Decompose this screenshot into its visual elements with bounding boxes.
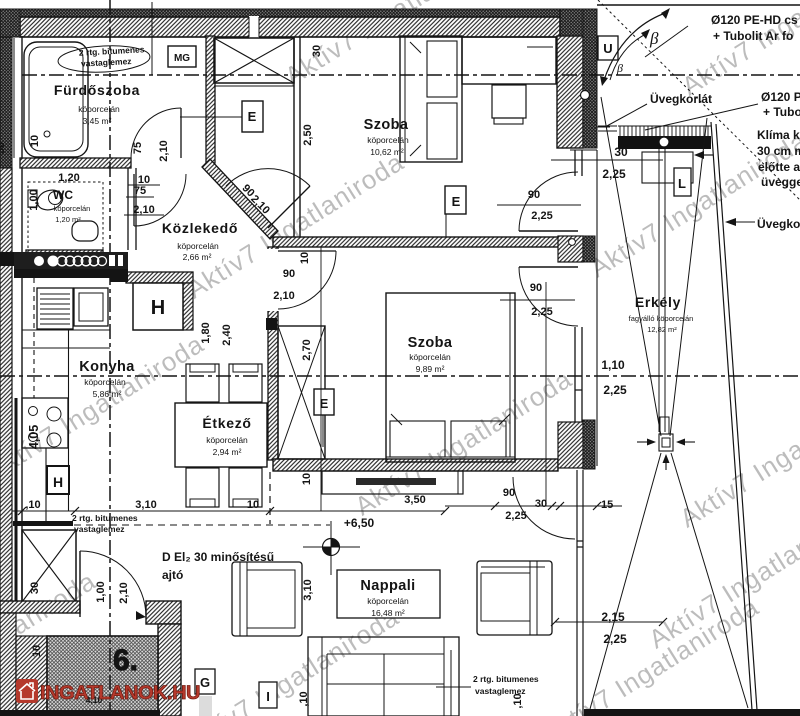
svg-text:10: 10 — [31, 645, 43, 657]
svg-text:fagyálló köporcelán: fagyálló köporcelán — [629, 314, 694, 323]
svg-text:köporcelán: köporcelán — [177, 241, 219, 251]
svg-text:1,00: 1,00 — [28, 189, 40, 210]
svg-text:6.: 6. — [113, 644, 138, 677]
svg-text:köporcelán: köporcelán — [206, 435, 248, 445]
svg-text:G: G — [200, 675, 210, 690]
svg-text:12,82 m²: 12,82 m² — [647, 325, 677, 334]
svg-text:90: 90 — [530, 282, 542, 294]
svg-text:Nappali: Nappali — [360, 578, 415, 594]
svg-text:3,10: 3,10 — [302, 579, 314, 600]
svg-text:1,20 m²: 1,20 m² — [55, 215, 81, 224]
svg-text:2,25: 2,25 — [603, 632, 627, 646]
svg-text:2,70: 2,70 — [301, 339, 313, 360]
svg-text:30: 30 — [535, 498, 547, 510]
svg-text:15: 15 — [601, 499, 613, 511]
svg-text:2,25: 2,25 — [531, 210, 552, 222]
svg-text:Szoba: Szoba — [364, 117, 409, 133]
svg-text:E: E — [248, 109, 257, 124]
svg-text:3,10: 3,10 — [135, 499, 156, 511]
svg-text:10: 10 — [29, 135, 41, 147]
svg-text:köporcelán: köporcelán — [84, 377, 126, 387]
svg-text:köporcelán: köporcelán — [367, 596, 409, 606]
svg-text:2,66 m²: 2,66 m² — [183, 252, 212, 262]
svg-text:Klíma k: Klíma k — [757, 128, 800, 142]
svg-text:2,25: 2,25 — [531, 306, 552, 318]
svg-text:+ Tubolit Ar fo: + Tubolit Ar fo — [713, 29, 793, 43]
svg-text:10: 10 — [247, 499, 259, 511]
svg-text:2,25: 2,25 — [603, 383, 627, 397]
svg-text:2,10: 2,10 — [273, 290, 294, 302]
svg-text:2,94 m²: 2,94 m² — [213, 447, 242, 457]
svg-text:30: 30 — [311, 45, 323, 57]
svg-text:U: U — [603, 41, 612, 56]
svg-text:3,45 m²: 3,45 m² — [83, 116, 112, 126]
svg-text:2,25: 2,25 — [602, 167, 626, 181]
svg-text:β: β — [649, 29, 659, 48]
svg-text:75: 75 — [132, 142, 144, 154]
svg-text:,10: ,10 — [25, 499, 40, 511]
svg-text:Konyha: Konyha — [79, 359, 135, 375]
svg-text:H: H — [151, 297, 165, 319]
svg-text:2,50: 2,50 — [302, 124, 314, 145]
svg-text:köporcelán: köporcelán — [409, 352, 451, 362]
svg-text:30: 30 — [29, 582, 41, 594]
svg-text:MG: MG — [174, 53, 190, 64]
svg-text:1,00: 1,00 — [95, 581, 107, 602]
svg-text:3,50: 3,50 — [404, 494, 425, 506]
svg-text:Közlekedő: Közlekedő — [162, 220, 238, 236]
svg-text:2,10: 2,10 — [158, 140, 170, 161]
svg-text:2,25: 2,25 — [505, 510, 526, 522]
svg-text:10: 10 — [301, 473, 313, 485]
svg-text:16,48 m²: 16,48 m² — [371, 608, 405, 618]
svg-text:β: β — [616, 61, 623, 75]
svg-text:Étkező: Étkező — [202, 415, 251, 431]
svg-text:,10: ,10 — [298, 691, 310, 706]
svg-text:I: I — [266, 689, 270, 704]
svg-text:10,62 m²: 10,62 m² — [370, 147, 404, 157]
svg-text:30 cm m: 30 cm m — [757, 144, 800, 158]
svg-text:D El₂ 30 minősítésű: D El₂ 30 minősítésű — [162, 550, 274, 564]
svg-text:köporcelán: köporcelán — [78, 104, 120, 114]
svg-text:1,80: 1,80 — [200, 322, 212, 343]
svg-text:köporcelán: köporcelán — [54, 204, 91, 213]
svg-text:WC: WC — [53, 188, 73, 202]
svg-text:Üvegkorlát: Üvegkorlát — [650, 91, 712, 106]
svg-text:90: 90 — [503, 487, 515, 499]
svg-text:2,10: 2,10 — [118, 582, 130, 603]
svg-text:Fürdőszoba: Fürdőszoba — [54, 82, 140, 98]
svg-text:H: H — [53, 474, 63, 490]
svg-text:30: 30 — [0, 142, 7, 154]
svg-text:9,89 m²: 9,89 m² — [416, 364, 445, 374]
svg-text:2,10: 2,10 — [133, 204, 154, 216]
svg-text:L: L — [678, 176, 686, 191]
svg-text:1,10: 1,10 — [601, 358, 625, 372]
svg-text:Ø120 PE-HD cs: Ø120 PE-HD cs — [711, 13, 798, 27]
svg-text:,10: ,10 — [512, 693, 524, 708]
svg-text:INGATLANOK.HU: INGATLANOK.HU — [40, 683, 200, 704]
svg-text:Erkély: Erkély — [635, 294, 681, 310]
svg-text:30: 30 — [614, 145, 628, 159]
svg-text:+ Tubo: + Tubo — [763, 105, 800, 119]
svg-text:2 rtg. bitumenes: 2 rtg. bitumenes — [72, 513, 138, 523]
svg-text:köporcelán: köporcelán — [367, 135, 409, 145]
svg-text:Szoba: Szoba — [408, 335, 453, 351]
svg-text:Üvegko: Üvegko — [757, 216, 800, 231]
svg-text:Ø120 P: Ø120 P — [761, 90, 800, 104]
svg-text:+6,50: +6,50 — [344, 516, 375, 530]
svg-text:E: E — [452, 194, 461, 209]
svg-text:1,20: 1,20 — [58, 172, 79, 184]
svg-text:75: 75 — [134, 185, 146, 197]
svg-text:90: 90 — [283, 268, 295, 280]
svg-text:2,40: 2,40 — [221, 324, 233, 345]
svg-text:10: 10 — [299, 252, 311, 264]
svg-text:2 rtg. bitumenes: 2 rtg. bitumenes — [473, 674, 539, 684]
svg-text:üveggel: üveggel — [761, 175, 800, 189]
svg-text:ajtó: ajtó — [162, 568, 183, 582]
svg-text:90: 90 — [528, 189, 540, 201]
svg-text:előtte a: előtte a — [758, 160, 800, 174]
svg-text:4,05: 4,05 — [27, 425, 41, 449]
svg-text:5,86 m²: 5,86 m² — [93, 389, 122, 399]
